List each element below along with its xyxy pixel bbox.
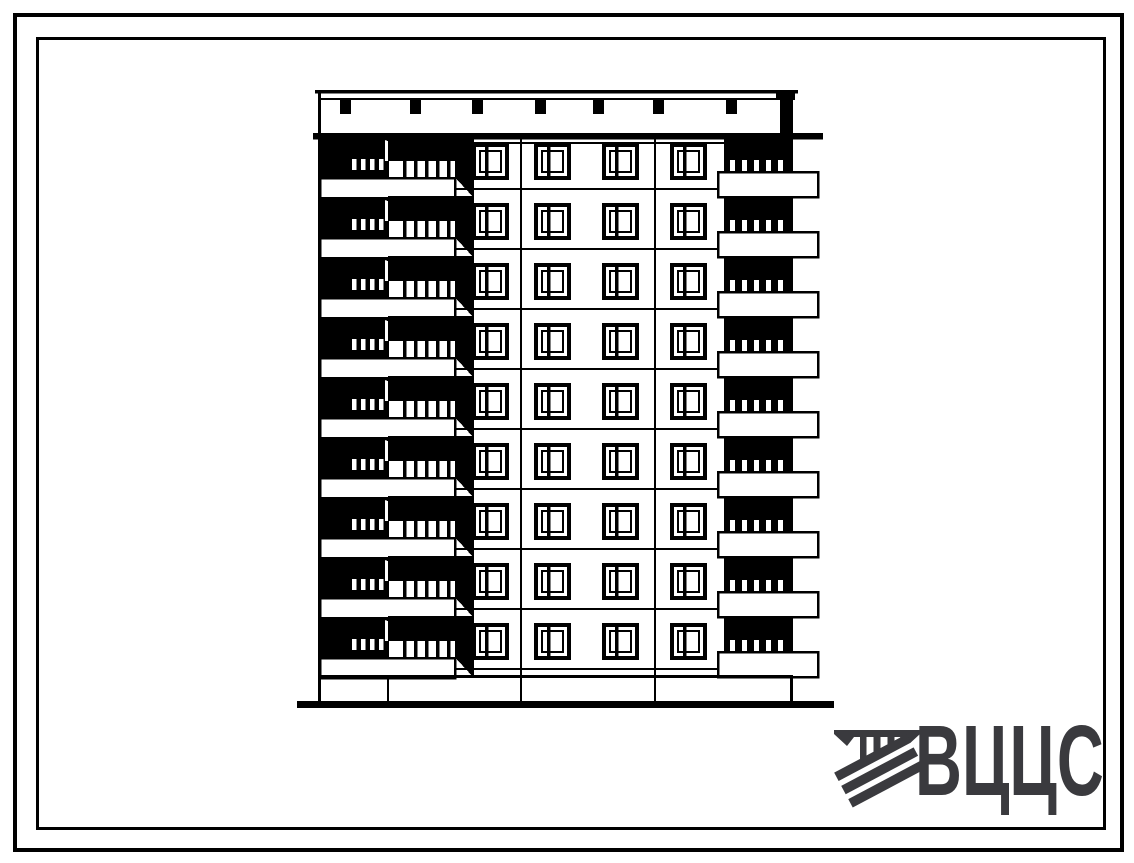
window [536,145,569,178]
window [604,205,637,238]
window [672,265,705,298]
logo-text: ВЦЦС [915,725,1104,797]
right-balcony-slab [718,592,818,617]
floor-row [320,436,818,498]
parapet-vent-stubs [340,100,737,114]
window [474,265,507,298]
window [604,145,637,178]
window [536,385,569,418]
floor-row [320,136,818,198]
floor-row [320,376,818,438]
left-balcony-slab [320,358,455,378]
floor-row [320,196,818,258]
right-balcony-slab [718,232,818,257]
window [672,625,705,658]
right-balcony-slab [718,532,818,557]
right-balcony-slab [718,292,818,317]
window [536,205,569,238]
right-balcony-slab [718,352,818,377]
window [474,145,507,178]
left-balcony-slab [320,598,455,618]
window [672,565,705,598]
striped-monogram-icon [831,716,926,808]
left-balcony-slab [320,538,455,558]
window [536,505,569,538]
floor-row [320,316,818,378]
right-balcony-slab [718,472,818,497]
ground-line [297,701,834,708]
right-balcony-slab [718,412,818,437]
window [536,265,569,298]
window [604,385,637,418]
left-balcony-slab [320,238,455,258]
window [604,445,637,478]
scanned-drawing-page: ВЦЦС [0,0,1134,863]
window [474,325,507,358]
window [672,325,705,358]
window [604,625,637,658]
floor-row [320,256,818,318]
window [672,505,705,538]
parapet-second-line [318,98,791,100]
building-base [297,675,834,708]
organization-logo: ВЦЦС [828,700,1108,815]
window [474,505,507,538]
plinth-line [318,675,793,678]
window [536,625,569,658]
right-balcony-slab [718,172,818,197]
chimney-stem [780,100,790,135]
left-balcony-slab [320,478,455,498]
window [474,565,507,598]
window [604,325,637,358]
window [672,205,705,238]
window [474,205,507,238]
left-balcony-slab [320,298,455,318]
floor-row [320,616,818,678]
left-balcony-slab [320,178,455,198]
window [536,565,569,598]
left-balcony-slab [320,418,455,438]
left-loggia-shadow-column [318,136,388,657]
right-balcony-slab [718,652,818,677]
floor-rows [320,136,818,678]
window [672,445,705,478]
window [536,325,569,358]
parapet-top-line [315,90,798,94]
window [474,625,507,658]
floor-row [320,496,818,558]
window [474,385,507,418]
window [604,265,637,298]
window [604,505,637,538]
window [536,445,569,478]
window [672,385,705,418]
window [604,565,637,598]
floor-row [320,556,818,618]
window [672,145,705,178]
window [474,445,507,478]
